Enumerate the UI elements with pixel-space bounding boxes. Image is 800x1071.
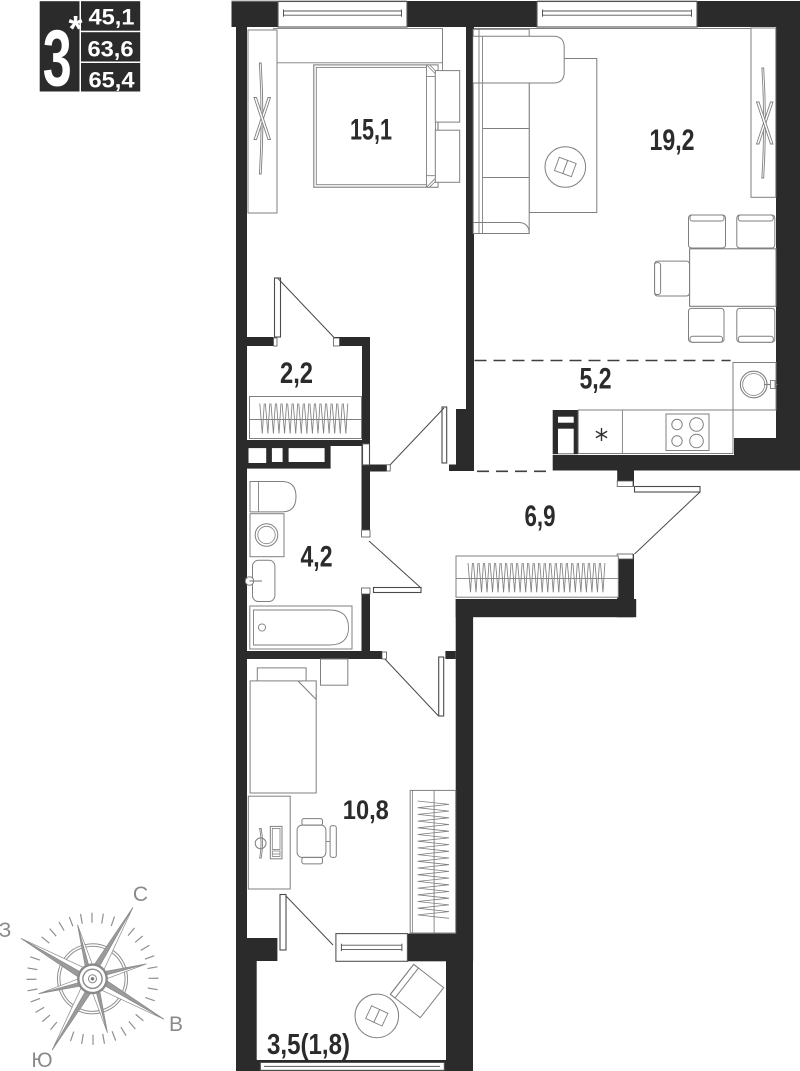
svg-text:45,1: 45,1 bbox=[89, 4, 135, 29]
svg-text:19,2: 19,2 bbox=[650, 124, 695, 157]
svg-text:65,4: 65,4 bbox=[89, 68, 136, 93]
svg-text:2,2: 2,2 bbox=[280, 357, 313, 390]
svg-text:3: 3 bbox=[43, 14, 72, 103]
svg-text:З: З bbox=[0, 919, 11, 942]
svg-text:15,1: 15,1 bbox=[350, 114, 392, 147]
svg-text:С: С bbox=[133, 883, 148, 906]
svg-text:10,8: 10,8 bbox=[343, 795, 389, 825]
svg-text:6,9: 6,9 bbox=[525, 500, 556, 533]
svg-text:3,5(1,8): 3,5(1,8) bbox=[267, 1029, 350, 1061]
svg-text:*: * bbox=[68, 8, 82, 49]
svg-text:4,2: 4,2 bbox=[301, 541, 333, 574]
svg-text:В: В bbox=[169, 1013, 183, 1036]
svg-text:5,2: 5,2 bbox=[580, 363, 612, 396]
svg-text:Ю: Ю bbox=[31, 1049, 52, 1071]
svg-text:63,6: 63,6 bbox=[88, 36, 134, 61]
